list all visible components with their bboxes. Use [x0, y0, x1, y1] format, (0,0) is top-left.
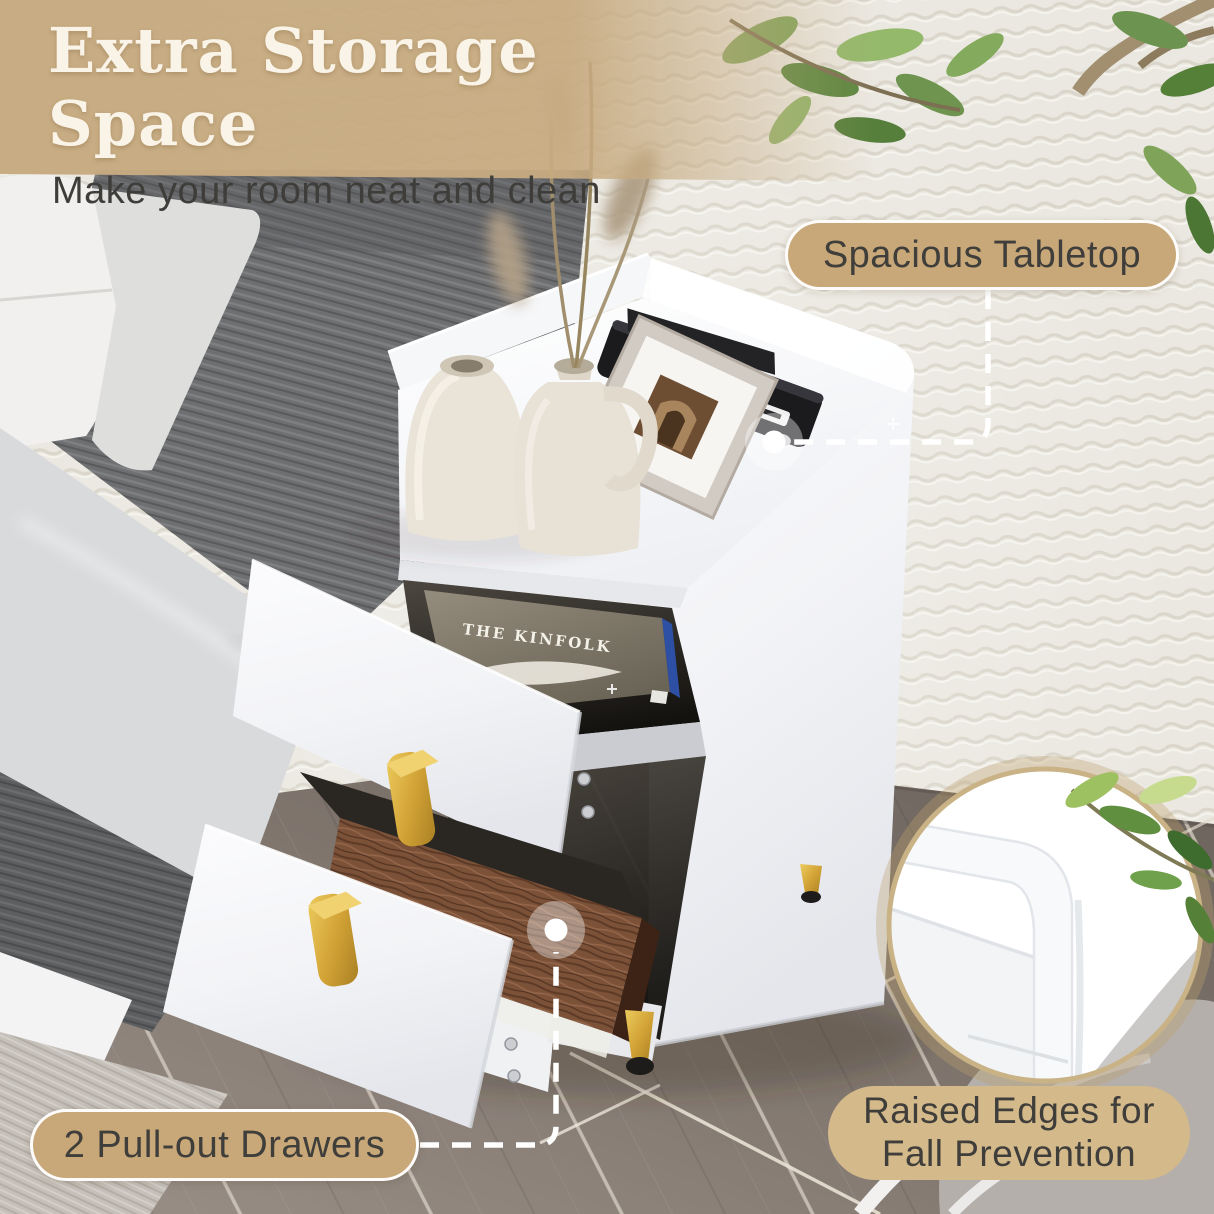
- callout-label: 2 Pull-out Drawers: [64, 1124, 386, 1167]
- connector-dot: [545, 919, 568, 942]
- callout-raised-edges: Raised Edges for Fall Prevention: [828, 1086, 1190, 1180]
- callout-spacious-tabletop: Spacious Tabletop: [785, 220, 1179, 290]
- detail-inset-raised-edge: [880, 762, 1214, 1092]
- product-marketing-image: THE KINFOLK: [0, 0, 1214, 1214]
- tan-banner-overlay: [0, 0, 1030, 182]
- photo-scene: THE KINFOLK: [0, 0, 1214, 1214]
- callout-label: Spacious Tabletop: [823, 234, 1141, 277]
- connector-dot: [763, 431, 786, 454]
- callout-pull-out-drawers: 2 Pull-out Drawers: [30, 1109, 419, 1181]
- callout-label-line2: Fall Prevention: [882, 1133, 1136, 1176]
- callout-label-line1: Raised Edges for: [863, 1090, 1155, 1133]
